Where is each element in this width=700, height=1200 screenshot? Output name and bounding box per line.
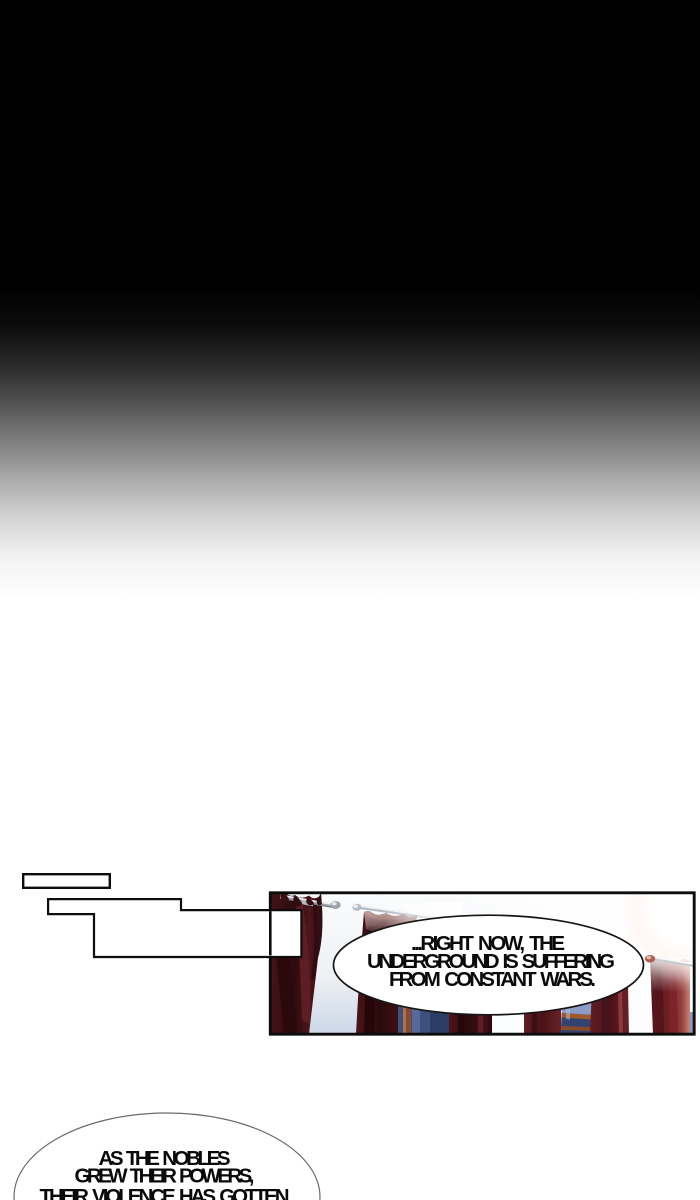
svg-text:THEIR VIOLENCE HAS GOTTEN: THEIR VIOLENCE HAS GOTTEN	[40, 1185, 290, 1200]
svg-text:FROM CONSTANT WARS.: FROM CONSTANT WARS.	[389, 968, 596, 991]
